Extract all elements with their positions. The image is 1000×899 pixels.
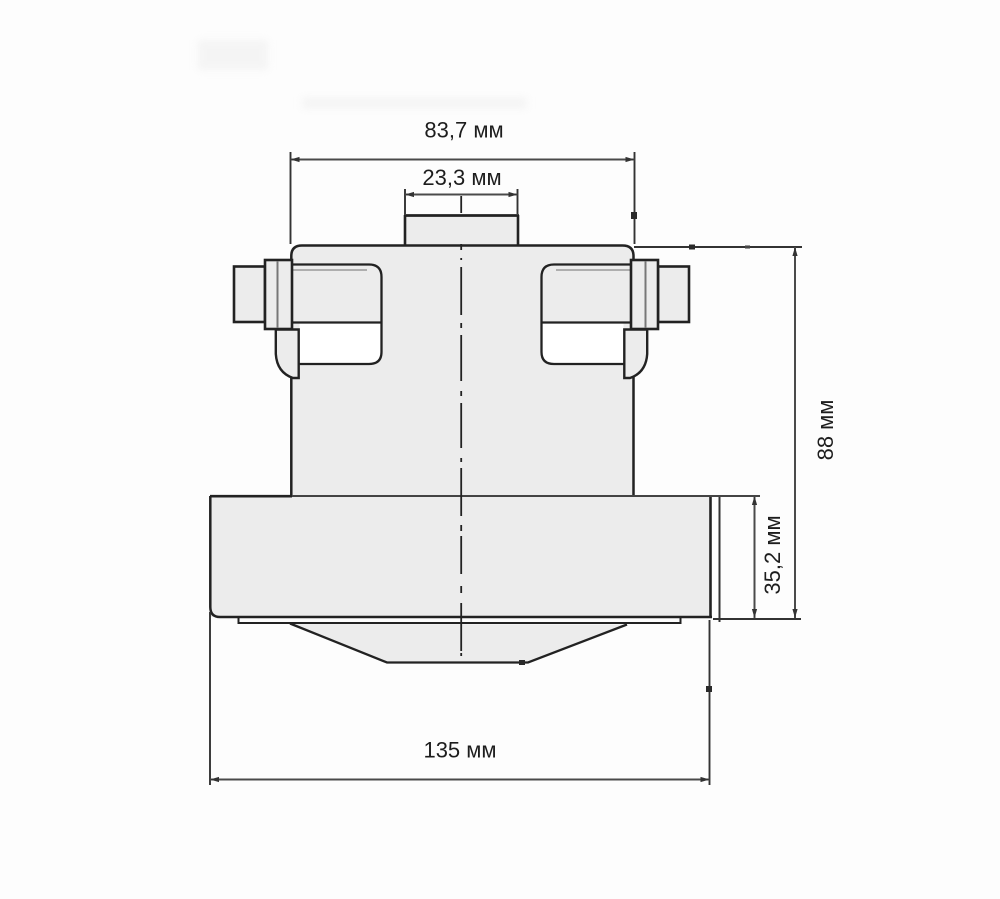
svg-text:23,3 мм: 23,3 мм (422, 165, 501, 190)
svg-text:135 мм: 135 мм (423, 738, 496, 763)
svg-text:88 мм: 88 мм (813, 400, 838, 461)
svg-text:35,2 мм: 35,2 мм (760, 515, 785, 594)
svg-text:83,7 мм: 83,7 мм (424, 118, 503, 143)
